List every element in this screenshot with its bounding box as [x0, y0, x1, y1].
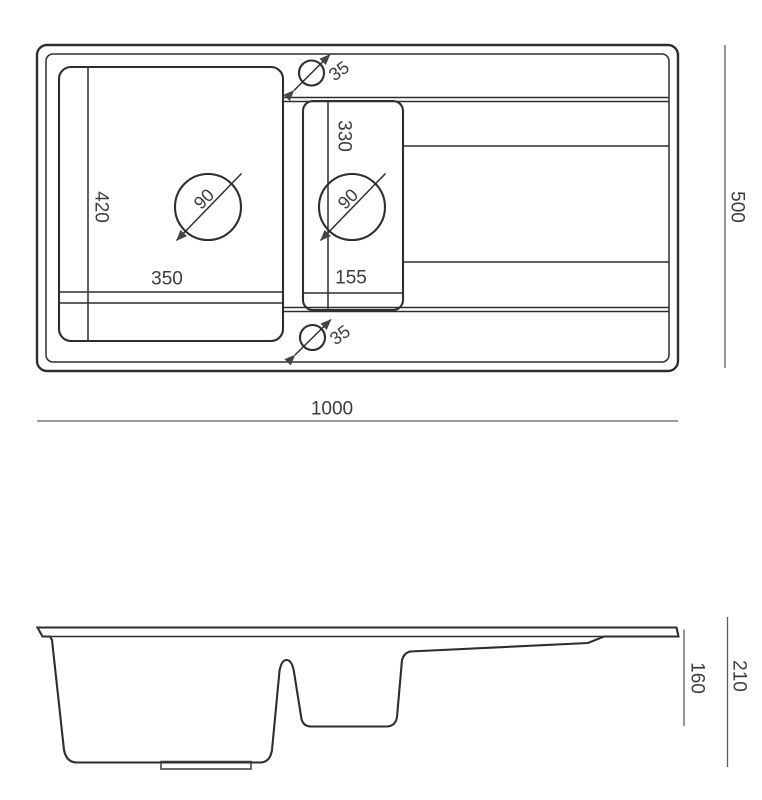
overall-width-label: 1000: [311, 399, 353, 420]
second-bowl-depth-label: 330: [334, 120, 355, 152]
tap-hole-top-diameter-label: 35: [325, 57, 353, 85]
sink-technical-drawing: 420 350 90 330 155 90 35 35 1000 500 160…: [0, 0, 762, 800]
main-drain-diameter-label: 90: [190, 185, 218, 213]
dimension-labels: 420 350 90 330 155 90 35 35 1000 500 160…: [91, 57, 750, 694]
tap-hole-bottom-symbol: [295, 320, 331, 356]
bowl-depth-label: 160: [687, 662, 708, 694]
overall-height-label: 210: [729, 660, 750, 692]
tap-hole-bottom-diameter-label: 35: [326, 321, 354, 349]
second-bowl-width-label: 155: [335, 268, 367, 289]
tap-hole-top-symbol: [294, 55, 330, 91]
overall-depth-label: 500: [727, 191, 748, 223]
sink-technical-drawing-page: 420 350 90 330 155 90 35 35 1000 500 160…: [0, 0, 762, 800]
main-bowl-width-label: 350: [151, 269, 183, 290]
second-drain-diameter-label: 90: [334, 185, 362, 213]
sink-outer-edge: [37, 45, 678, 371]
top-view: [37, 45, 725, 421]
side-view: [38, 617, 728, 769]
sink-profile-outline: [38, 628, 679, 763]
main-bowl-depth-label: 420: [91, 191, 112, 223]
